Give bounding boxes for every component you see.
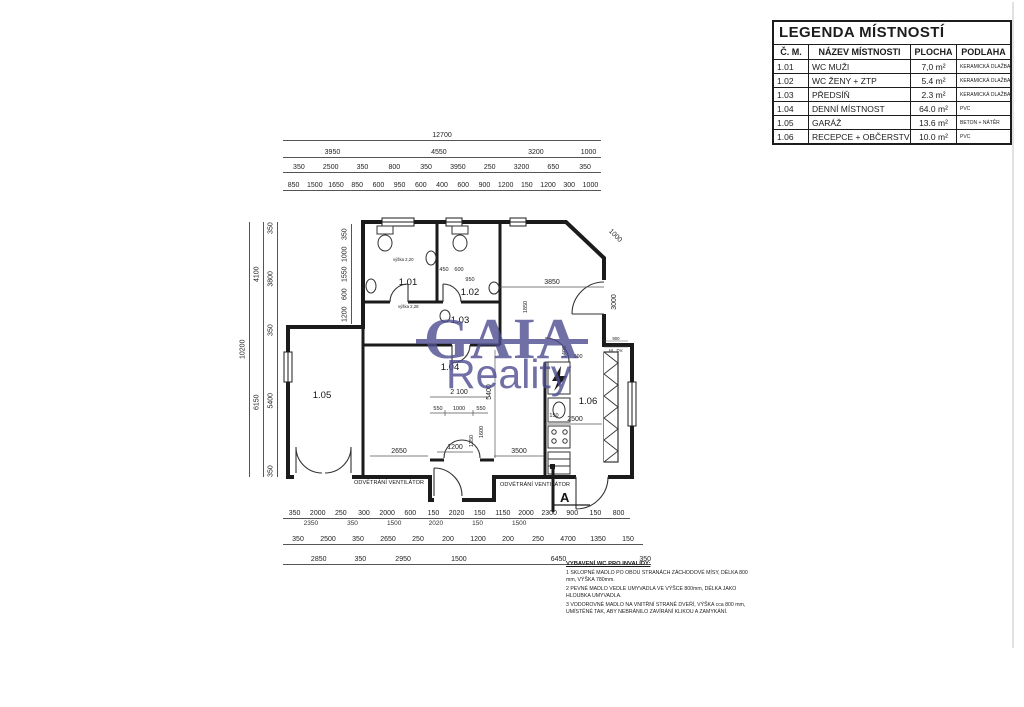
dimension-value: 12700 — [283, 131, 601, 140]
dimension-value: 1500 — [304, 181, 325, 190]
legend-room-floor: KERAMICKÁ DLAŽBA — [956, 60, 1010, 73]
dimension-value: 350 — [265, 465, 277, 477]
dimension-value: 350 — [265, 324, 277, 336]
dimension-value: 4700 — [553, 535, 583, 544]
dimension-value: 350 — [283, 535, 313, 544]
room-label-1-05: 1.05 — [313, 390, 332, 401]
dimension-value: 250 — [329, 509, 352, 518]
dimension-value: 950 — [389, 181, 410, 190]
dim-label: 1850 — [523, 301, 529, 313]
dimension-value: 350 — [569, 163, 601, 172]
notes-list: 1 SKLOPNÉ MADLO PO OBOU STRANÁCH ZÁCHODO… — [566, 570, 748, 615]
legend-room-name: GARÁŽ — [808, 116, 910, 129]
dimension-value: 2500 — [313, 535, 343, 544]
legend-title: LEGENDA MÍSTNOSTÍ — [774, 22, 1010, 45]
dim-label: 450 — [439, 267, 448, 273]
dimension-value: 600 — [453, 181, 474, 190]
reception-counter — [604, 352, 618, 462]
dimension-value: 150 — [468, 509, 491, 518]
dimension-value: 350 — [332, 519, 374, 528]
legend-row: 1.03 PŘEDSÍŇ 2.3 m² KERAMICKÁ DLAŽBA — [774, 87, 1010, 101]
notes-item: 3 VODOROVNÉ MADLO NA VNITŘNÍ STRANĚ DVEŘ… — [566, 602, 748, 615]
floor-plan-page: 3850 1000 3000 5400 2 100 550 1000 550 1… — [0, 0, 1024, 707]
dimension-value: 1500 — [373, 519, 415, 528]
dim-label: 1200 — [447, 444, 463, 451]
legend-room-number: 1.01 — [774, 60, 808, 73]
dimension-value: 10200 — [237, 222, 249, 477]
dimension-row-bottom-1: 3502000250300200060015020201501150200023… — [283, 508, 630, 519]
legend-room-number: 1.03 — [774, 88, 808, 101]
dimension-value: 350 — [347, 163, 379, 172]
dimension-value: 1350 — [583, 535, 613, 544]
legend-room-area: 5.4 m² — [910, 74, 956, 87]
dimension-value: 250 — [474, 163, 506, 172]
dim-label: 2 100 — [450, 389, 468, 396]
dimension-value: 1000 — [339, 244, 351, 264]
dimension-value: 1200 — [339, 304, 351, 324]
dim-label: 2650 — [391, 448, 407, 455]
dimension-value: 350 — [343, 535, 373, 544]
dim-label: 1000 — [607, 228, 623, 244]
dimension-value: 3950 — [442, 163, 474, 172]
dimension-value: 850 — [283, 181, 304, 190]
dimension-value: 2020 — [445, 509, 468, 518]
legend-room-number: 1.06 — [774, 130, 808, 143]
dimension-row-bottom-2: 3502500350265025020012002002504700135015… — [283, 534, 643, 545]
legend-header-cell: Č. M. — [774, 45, 808, 59]
notes-item: 2 PEVNÉ MADLO VEDLE UMYVADLA VE VÝŠCE 80… — [566, 586, 748, 599]
dimension-value: 1650 — [325, 181, 346, 190]
dimension-value: 250 — [403, 535, 433, 544]
dimension-value: 900 — [561, 509, 584, 518]
legend-room-area: 64.0 m² — [910, 102, 956, 115]
dimension-value: 150 — [457, 519, 499, 528]
dimension-value: 800 — [607, 509, 630, 518]
dimension-value: 1150 — [491, 509, 514, 518]
dimension-value: 6150 — [251, 327, 263, 477]
room-label-1-06: 1.06 — [579, 396, 598, 407]
dimension-value: 1000 — [576, 148, 601, 157]
dimension-value: 1000 — [580, 181, 601, 190]
dimension-value: 2000 — [514, 509, 537, 518]
vent-label-left: ODVĚTRÁNÍ VENTILÁTOR — [354, 480, 424, 486]
dimension-value: 3200 — [506, 163, 538, 172]
legend-table: LEGENDA MÍSTNOSTÍ Č. M.NÁZEV MÍSTNOSTIPL… — [772, 20, 1012, 145]
dim-label: 1350 — [469, 435, 475, 447]
dim-label: 950 — [465, 277, 474, 283]
dimension-value: 2020 — [415, 519, 457, 528]
vent-label-right: ODVĚTRÁNÍ VENTILÁTOR — [500, 482, 570, 488]
dimension-value: 850 — [347, 181, 368, 190]
legend-body: 1.01 WC MUŽI 7,0 m² KERAMICKÁ DLAŽBA 1.0… — [774, 59, 1010, 143]
dimension-value: 900 — [474, 181, 495, 190]
room-label-1-03: 1.03 — [451, 315, 470, 326]
dimension-value: 5400 — [265, 336, 277, 466]
dimension-row-top-detail-1: 350250035080035039502503200650350 — [283, 162, 601, 173]
dimension-value: 650 — [537, 163, 569, 172]
legend-room-name: WC MUŽI — [808, 60, 910, 73]
legend-room-area: 2.3 m² — [910, 88, 956, 101]
legend-room-area: 7,0 m² — [910, 60, 956, 73]
room-label-1-04: 1.04 — [441, 362, 460, 373]
dimension-column-left-overall: 10200 — [237, 222, 250, 477]
legend-header-cell: PLOCHA — [910, 45, 956, 59]
height-note: výška 2,20 — [393, 257, 414, 262]
legend-room-floor: PVC — [956, 130, 1010, 143]
dimension-value: 150 — [422, 509, 445, 518]
legend-room-name: WC ŽENY + ZTP — [808, 74, 910, 87]
dimension-row-top-main: 3950 4550 3200 1000 — [283, 147, 601, 158]
dimension-value: 600 — [399, 509, 422, 518]
dimension-value: 200 — [493, 535, 523, 544]
dimension-value: 1500 — [440, 555, 478, 564]
height-note: výška 2,28 — [398, 304, 419, 309]
dimension-value: 3200 — [496, 148, 576, 157]
dimension-value: 2650 — [373, 535, 403, 544]
dimension-value: 2300 — [538, 509, 561, 518]
dim-label: 600 — [454, 267, 463, 273]
interior-dim-texts: 3850 1000 3000 5400 2 100 550 1000 550 1… — [391, 228, 623, 455]
dimension-value: 400 — [431, 181, 452, 190]
dimension-value: 3800 — [265, 234, 277, 324]
legend-row: 1.05 GARÁŽ 13.6 m² BETON + NÁTĚR — [774, 115, 1010, 129]
dimension-value: 150 — [516, 181, 537, 190]
legend-row: 1.02 WC ŽENY + ZTP 5.4 m² KERAMICKÁ DLAŽ… — [774, 73, 1010, 87]
legend-room-name: DENNÍ MÍSTNOST — [808, 102, 910, 115]
dimension-value: 300 — [352, 509, 375, 518]
legend-room-floor: PVC — [956, 102, 1010, 115]
legend-room-floor: BETON + NÁTĚR — [956, 116, 1010, 129]
legend-room-name: PŘEDSÍŇ — [808, 88, 910, 101]
dimension-value: 2850 — [283, 555, 354, 564]
dimension-column-left-detail: 350 3800 350 5400 350 — [265, 222, 278, 477]
dimension-value: 2350 — [290, 519, 332, 528]
dimension-row-bottom-sub: 2350350150020201501500 — [290, 519, 540, 528]
dimension-value: 350 — [283, 163, 315, 172]
room-label-1-01: 1.01 — [399, 277, 418, 288]
dimension-value: 150 — [584, 509, 607, 518]
dimension-value: 600 — [339, 284, 351, 304]
dimension-value: 1200 — [463, 535, 493, 544]
dimension-value: 2500 — [315, 163, 347, 172]
legend-header-cell: NÁZEV MÍSTNOSTI — [808, 45, 910, 59]
dim-label: 550 — [433, 406, 442, 412]
door-spec-width: 900 — [612, 336, 620, 341]
dimension-value: 1500 — [498, 519, 540, 528]
dimension-row-top-overall: 12700 — [283, 130, 601, 141]
dim-label: 300 — [573, 354, 582, 360]
dimension-value: 1200 — [495, 181, 516, 190]
dimension-value: 1200 — [537, 181, 558, 190]
dim-label: 2500 — [567, 416, 583, 423]
dim-label: 3500 — [511, 448, 527, 455]
dim-label: 3850 — [544, 279, 560, 286]
legend-room-floor: KERAMICKÁ DLAŽBA — [956, 88, 1010, 101]
dim-label: 5400 — [486, 384, 493, 400]
dimension-column-left-main: 4100 6150 — [251, 222, 264, 477]
wc-accessibility-notes: VYBAVENÍ WC PRO INVALIDY: 1 SKLOPNÉ MADL… — [566, 561, 748, 615]
door-spec-type: HL. DV. — [609, 348, 624, 353]
dimension-value: 250 — [523, 535, 553, 544]
legend-row: 1.06 RECEPCE + OBČERSTVENÍ 10.0 m² PVC — [774, 129, 1010, 143]
legend-header-cell: PODLAHA — [956, 45, 1010, 59]
dimension-column-inner: 350100015506001200 — [339, 224, 352, 324]
dimension-value: 200 — [433, 535, 463, 544]
dim-label: 1400 — [562, 346, 568, 358]
door-spec-height: 1970 — [611, 342, 621, 347]
legend-row: 1.04 DENNÍ MÍSTNOST 64.0 m² PVC — [774, 101, 1010, 115]
notes-heading: VYBAVENÍ WC PRO INVALIDY: — [566, 561, 748, 567]
dimension-row-top-detail-2: 8501500165085060095060040060090012001501… — [283, 179, 601, 191]
dim-label: 550 — [476, 406, 485, 412]
legend-room-number: 1.04 — [774, 102, 808, 115]
section-marker-label: A — [560, 490, 570, 505]
legend-room-floor: KERAMICKÁ DLAŽBA — [956, 74, 1010, 87]
sanitary-fixtures — [366, 226, 499, 322]
dimension-value: 350 — [410, 163, 442, 172]
dimension-value: 350 — [265, 222, 277, 234]
dimension-value: 600 — [368, 181, 389, 190]
dimension-value: 800 — [378, 163, 410, 172]
dimension-value: 350 — [339, 224, 351, 244]
dimension-value: 2950 — [366, 555, 440, 564]
dimension-value: 300 — [559, 181, 580, 190]
room-label-1-02: 1.02 — [461, 287, 480, 298]
dimension-value: 4550 — [382, 148, 496, 157]
dimension-value: 2000 — [376, 509, 399, 518]
dim-label: 1600 — [479, 426, 485, 438]
legend-room-area: 13.6 m² — [910, 116, 956, 129]
dimension-value: 3950 — [283, 148, 382, 157]
dimension-value: 4100 — [251, 222, 263, 327]
legend-room-number: 1.02 — [774, 74, 808, 87]
legend-room-area: 10.0 m² — [910, 130, 956, 143]
dim-label: 3000 — [611, 294, 618, 310]
dimension-value: 2000 — [306, 509, 329, 518]
dimension-value: 350 — [354, 555, 366, 564]
dimension-value: 1550 — [339, 264, 351, 284]
notes-item: 1 SKLOPNÉ MADLO PO OBOU STRANÁCH ZÁCHODO… — [566, 570, 748, 583]
dimension-value: 150 — [613, 535, 643, 544]
dim-label: 150 — [549, 413, 558, 419]
dim-label: 1000 — [453, 406, 465, 412]
legend-row: 1.01 WC MUŽI 7,0 m² KERAMICKÁ DLAŽBA — [774, 59, 1010, 73]
dimension-value: 350 — [283, 509, 306, 518]
dimension-value: 600 — [410, 181, 431, 190]
legend-room-number: 1.05 — [774, 116, 808, 129]
legend-room-name: RECEPCE + OBČERSTVENÍ — [808, 130, 910, 143]
legend-header-row: Č. M.NÁZEV MÍSTNOSTIPLOCHAPODLAHA — [774, 45, 1010, 59]
